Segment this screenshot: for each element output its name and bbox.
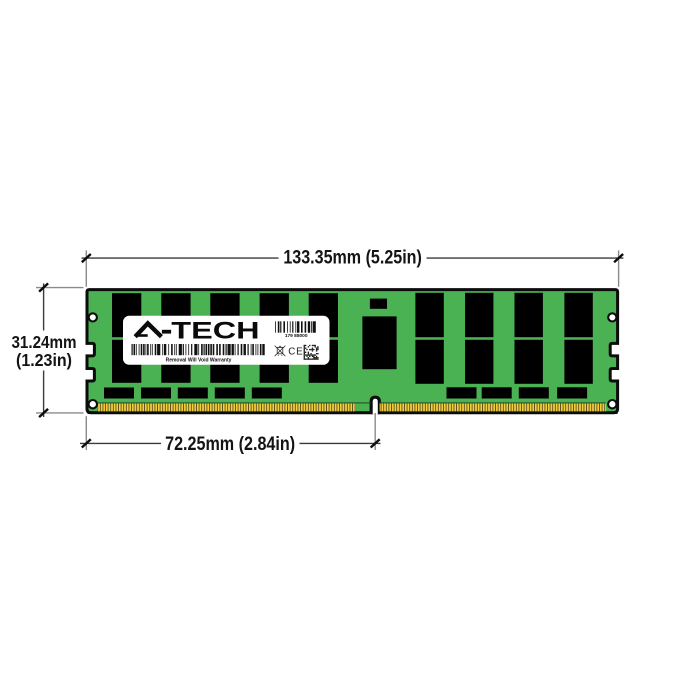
svg-text:179 88000: 179 88000 (285, 333, 308, 339)
svg-text:TECH: TECH (171, 318, 259, 345)
svg-text:72.25mm (2.84in): 72.25mm (2.84in) (165, 434, 295, 455)
svg-text:CE: CE (288, 347, 303, 358)
svg-text:(1.23in): (1.23in) (16, 350, 72, 370)
svg-text:133.35mm (5.25in): 133.35mm (5.25in) (283, 248, 422, 269)
svg-text:Removal Will Void Warranty: Removal Will Void Warranty (166, 357, 232, 363)
